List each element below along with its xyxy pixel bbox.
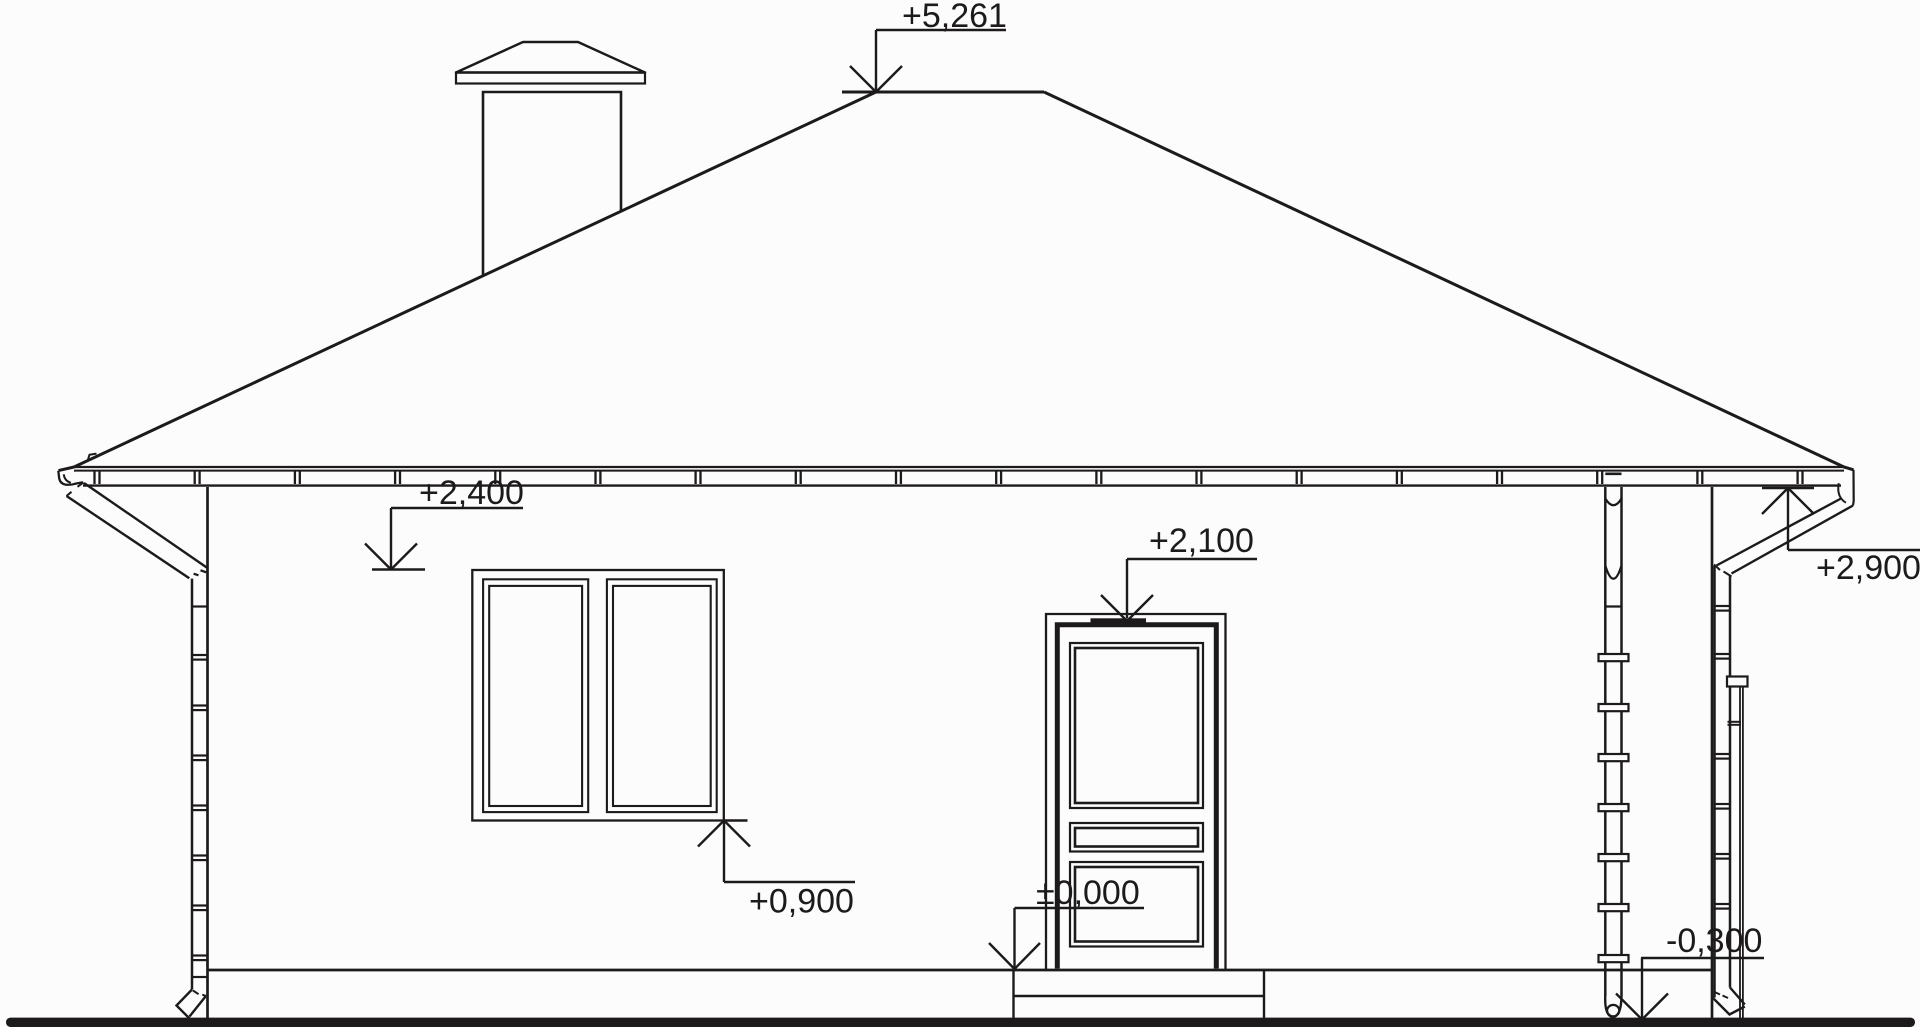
svg-text:+2,100: +2,100 bbox=[1149, 522, 1254, 560]
svg-text:+5,261: +5,261 bbox=[902, 0, 1007, 35]
svg-text:+2,900: +2,900 bbox=[1816, 549, 1920, 587]
svg-text:±0,000: ±0,000 bbox=[1036, 874, 1140, 912]
svg-text:+2,400: +2,400 bbox=[419, 474, 524, 512]
svg-text:-0,300: -0,300 bbox=[1666, 922, 1762, 960]
svg-text:+0,900: +0,900 bbox=[749, 883, 854, 921]
